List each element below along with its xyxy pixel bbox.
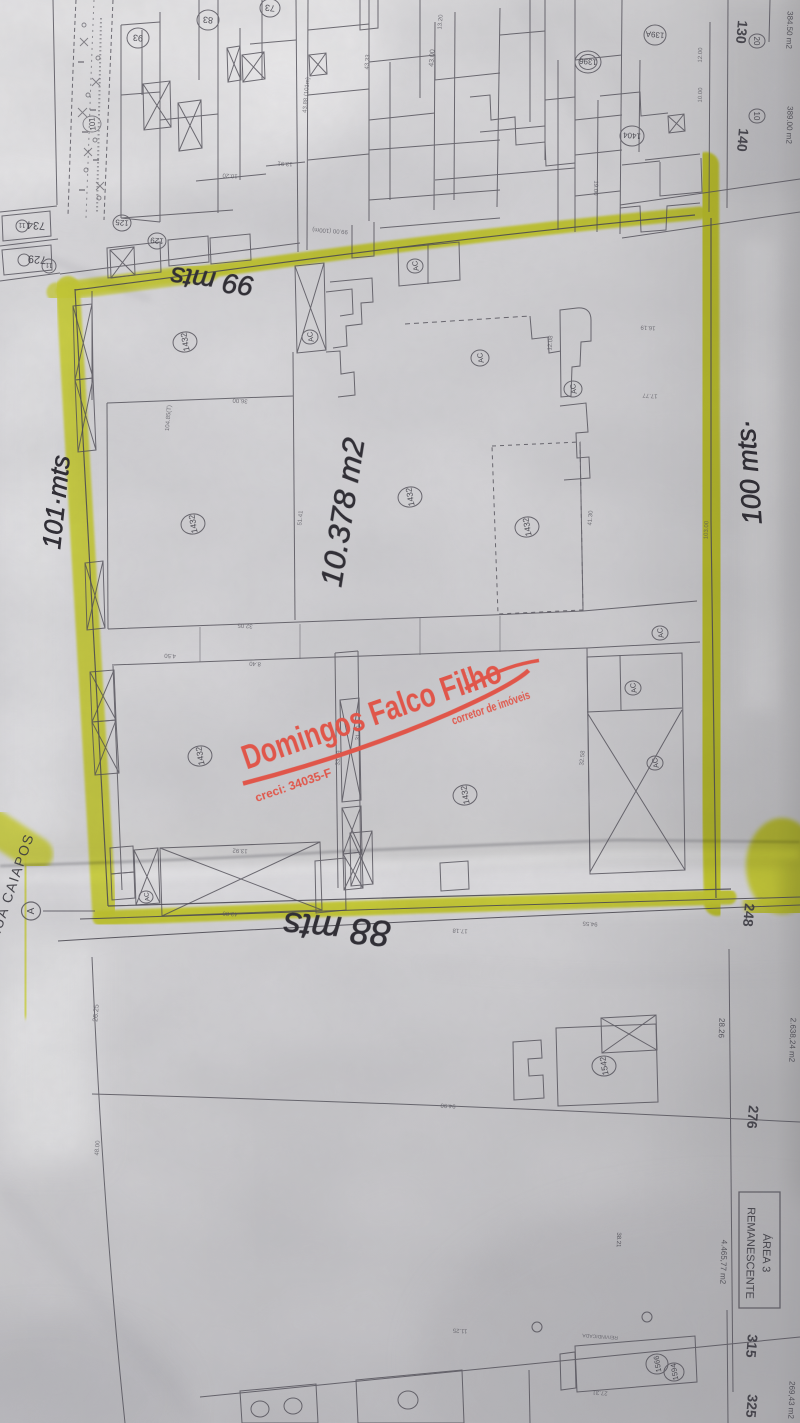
svg-text:27.31: 27.31 <box>592 1388 608 1395</box>
svg-text:16.19: 16.19 <box>640 323 656 330</box>
svg-text:AC: AC <box>568 382 579 394</box>
svg-text:8.40: 8.40 <box>248 660 261 667</box>
svg-text:125: 125 <box>114 217 129 227</box>
svg-text:276: 276 <box>744 1105 762 1130</box>
svg-text:10.00: 10.00 <box>698 87 705 103</box>
svg-text:38.21: 38.21 <box>615 1232 622 1248</box>
svg-text:94.55: 94.55 <box>582 919 598 926</box>
svg-text:10: 10 <box>752 112 761 121</box>
svg-text:A: A <box>26 907 37 914</box>
svg-text:13.92: 13.92 <box>232 846 248 853</box>
svg-text:1404: 1404 <box>622 130 641 141</box>
svg-text:12.00: 12.00 <box>698 47 705 63</box>
svg-text:AC: AC <box>410 259 421 271</box>
svg-text:43.80: 43.80 <box>222 909 238 916</box>
svg-text:36.00: 36.00 <box>232 396 248 403</box>
svg-text:130: 130 <box>733 20 751 45</box>
svg-text:11.25: 11.25 <box>452 1326 468 1333</box>
svg-text:19.00: 19.00 <box>592 180 599 196</box>
svg-text:AC: AC <box>305 330 316 342</box>
svg-text:269,43 m2: 269,43 m2 <box>786 1381 796 1420</box>
svg-text:248: 248 <box>740 903 758 928</box>
svg-text:140: 140 <box>734 128 752 153</box>
svg-text:AC: AC <box>628 681 639 693</box>
svg-text:1396: 1396 <box>578 56 597 67</box>
svg-text:389.00 m2: 389.00 m2 <box>784 106 794 145</box>
svg-text:4.50: 4.50 <box>163 652 176 659</box>
svg-text:17.77: 17.77 <box>642 391 658 398</box>
svg-text:13.91: 13.91 <box>277 159 293 166</box>
svg-text:11: 11 <box>18 221 26 228</box>
svg-text:28.26: 28.26 <box>717 1018 727 1039</box>
svg-text:17.18: 17.18 <box>452 926 468 933</box>
svg-text:32.05: 32.05 <box>237 621 253 628</box>
svg-text:2.638,24 m2: 2.638,24 m2 <box>787 1018 798 1063</box>
svg-text:REMANESCENTE: REMANESCENTE <box>743 1207 757 1299</box>
svg-text:384.50 m2: 384.50 m2 <box>784 11 794 50</box>
svg-text:83: 83 <box>203 15 214 26</box>
svg-text:ÁREA 3: ÁREA 3 <box>760 1234 774 1273</box>
svg-text:315: 315 <box>743 1334 761 1359</box>
svg-text:20: 20 <box>752 37 761 46</box>
svg-text:4.465,77 m2: 4.465,77 m2 <box>718 1240 729 1285</box>
svg-text:73: 73 <box>265 3 276 14</box>
svg-text:101: 101 <box>87 116 97 131</box>
svg-text:129: 129 <box>149 235 164 245</box>
svg-text:AC: AC <box>655 626 666 638</box>
svg-text:10.20: 10.20 <box>222 171 238 178</box>
svg-text:AC: AC <box>650 756 661 768</box>
svg-text:734: 734 <box>26 218 45 231</box>
svg-text:103.00: 103.00 <box>704 520 711 539</box>
svg-text:94.90: 94.90 <box>440 1101 456 1108</box>
svg-text:729: 729 <box>27 252 46 265</box>
svg-text:139A: 139A <box>645 29 665 40</box>
svg-text:93: 93 <box>133 33 144 44</box>
svg-text:AC: AC <box>475 351 486 363</box>
svg-text:325: 325 <box>743 1394 761 1419</box>
